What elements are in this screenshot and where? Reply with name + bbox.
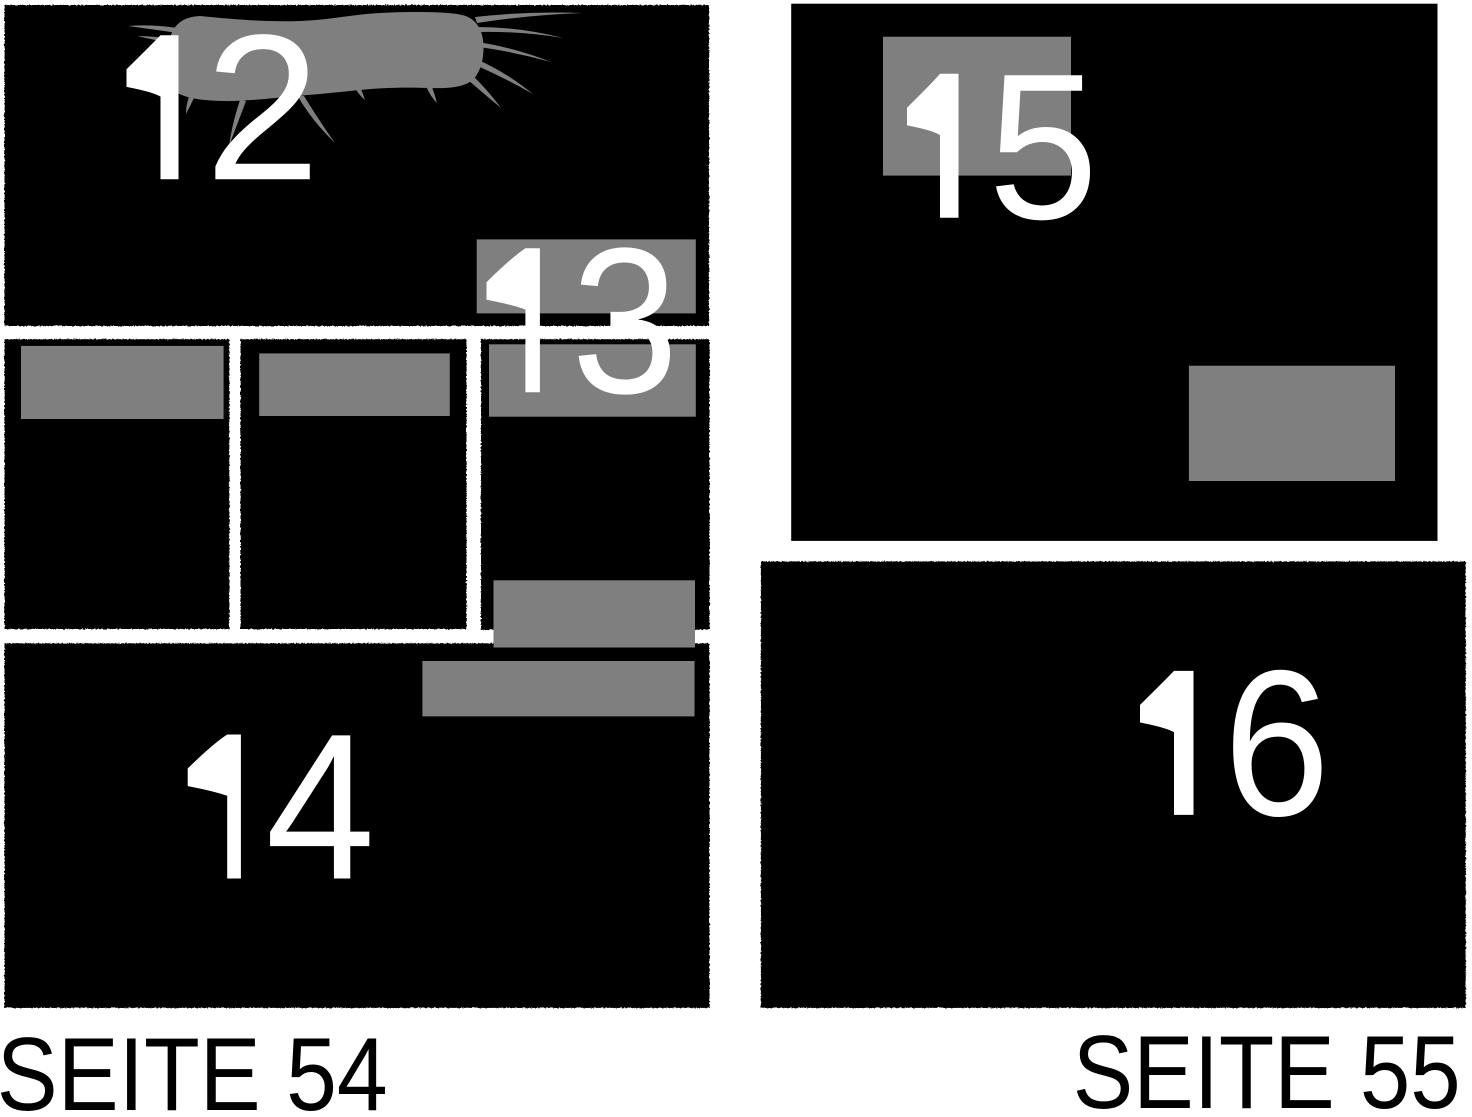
svg-text:4: 4 — [266, 691, 376, 923]
svg-text:SEITE 54: SEITE 54 — [0, 1017, 388, 1117]
svg-text:2: 2 — [205, 0, 320, 223]
svg-text:6: 6 — [1223, 628, 1330, 860]
svg-text:SEITE 55: SEITE 55 — [1073, 1014, 1461, 1117]
svg-text:3: 3 — [571, 205, 678, 437]
svg-text:5: 5 — [988, 31, 1098, 263]
